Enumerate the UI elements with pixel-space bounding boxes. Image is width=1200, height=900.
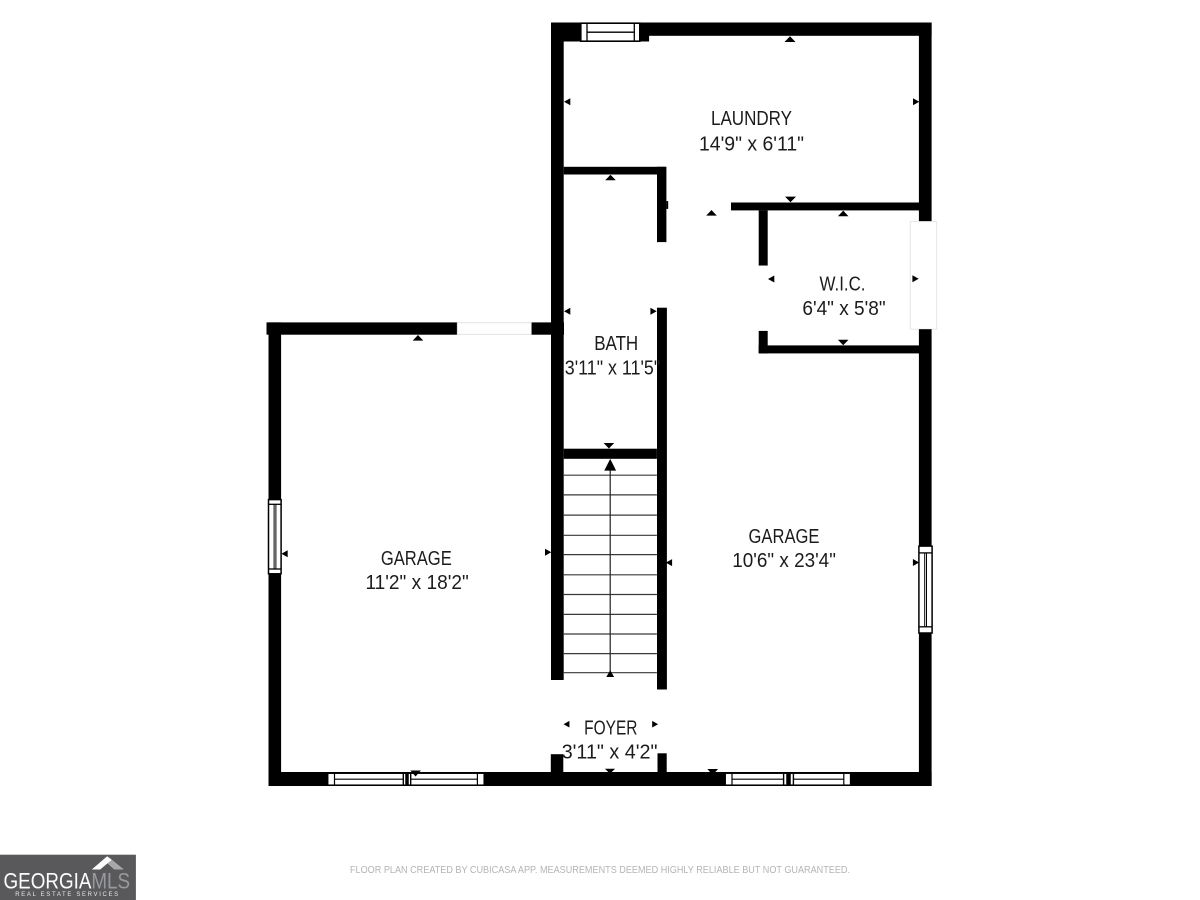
svg-text:3'11" x 11'5": 3'11" x 11'5" bbox=[565, 358, 660, 380]
svg-text:14'9" x 6'11": 14'9" x 6'11" bbox=[699, 134, 804, 156]
svg-text:LAUNDRY: LAUNDRY bbox=[711, 108, 792, 130]
svg-text:GARAGE: GARAGE bbox=[381, 548, 452, 570]
svg-text:11'2" x 18'2": 11'2" x 18'2" bbox=[365, 572, 468, 594]
svg-text:GARAGE: GARAGE bbox=[749, 526, 820, 548]
svg-text:W.I.C.: W.I.C. bbox=[820, 274, 866, 296]
svg-text:10'6" x 23'4": 10'6" x 23'4" bbox=[732, 550, 836, 572]
svg-text:6'4" x 5'8": 6'4" x 5'8" bbox=[802, 298, 885, 320]
svg-text:3'11" x 4'2": 3'11" x 4'2" bbox=[562, 741, 658, 763]
svg-text:FOYER: FOYER bbox=[584, 718, 637, 740]
svg-text:BATH: BATH bbox=[594, 333, 638, 355]
svg-text:REAL ESTATE SERVICES: REAL ESTATE SERVICES bbox=[15, 892, 118, 898]
svg-text:GEORGIAMLS: GEORGIAMLS bbox=[4, 868, 131, 893]
svg-text:FLOOR PLAN CREATED BY CUBICASA: FLOOR PLAN CREATED BY CUBICASA APP. MEAS… bbox=[350, 864, 850, 876]
